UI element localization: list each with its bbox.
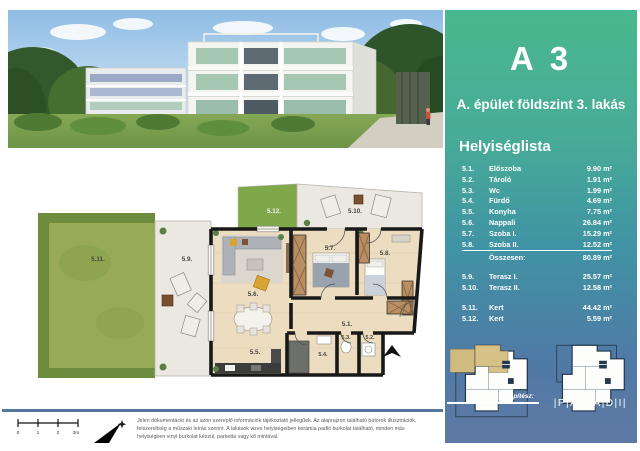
- terrace-5-9: [155, 221, 211, 376]
- room-name: Terasz I.: [489, 272, 583, 283]
- room-name: Wc: [489, 186, 587, 197]
- room-name: Szoba II.: [489, 240, 583, 251]
- total-area: 80.89 m²: [583, 252, 612, 263]
- total-row: Összesen: 80.89 m²: [462, 252, 612, 263]
- room-num: 5.8.: [462, 240, 489, 251]
- sidebar: A 3 A. épület földszint 3. lakás Helyisé…: [445, 10, 637, 443]
- garden-5-11: [38, 213, 155, 378]
- room-area: 12.58 m²: [583, 283, 612, 294]
- room-row: 5.1.Előszoba9.90 m²: [462, 164, 612, 175]
- living-room-furniture: [213, 230, 290, 291]
- label-5-5: 5.5.: [250, 349, 261, 356]
- room-num: 5.7.: [462, 229, 489, 240]
- room-name: Tároló: [489, 175, 587, 186]
- brochure-page: A 3 A. épület földszint 3. lakás Helyisé…: [0, 0, 640, 451]
- room-area: 12.52 m²: [583, 240, 612, 251]
- scale-tick-0: 0: [17, 430, 20, 436]
- room-row: 5.5.Konyha7.75 m²: [462, 207, 612, 218]
- room-area: 5.59 m²: [587, 314, 612, 325]
- scale-tick-1: 1: [37, 430, 40, 436]
- architect-divider: [447, 402, 539, 404]
- room-name: Konyha: [489, 207, 587, 218]
- room-row: 5.11.Kert44.42 m²: [462, 303, 612, 314]
- room-row: 5.4.Fürdő4.69 m²: [462, 196, 612, 207]
- room-name: Kert: [489, 314, 587, 325]
- room-list-heading: Helyiséglista: [459, 138, 637, 155]
- disclaimer-text: Jelen dokumentáció és az azon szereplő i…: [137, 418, 433, 442]
- apartment-code: A 3: [445, 40, 637, 78]
- room-area: 1.91 m²: [587, 175, 612, 186]
- left-building: [86, 68, 186, 116]
- room-row: 5.9.Terasz I.25.57 m²: [462, 272, 612, 283]
- garden-rooms: 5.11.Kert44.42 m²5.12.Kert5.59 m²: [462, 303, 612, 325]
- room-list-table: 5.1.Előszoba9.90 m²5.2.Tároló1.91 m²5.3.…: [462, 164, 612, 325]
- garden-5-12: [238, 184, 297, 229]
- plan-north-arrow-icon: [383, 345, 401, 357]
- room-num: 5.1.: [462, 164, 489, 175]
- jogger-figure: [426, 108, 431, 125]
- apartment-subtitle: A. épület földszint 3. lakás: [445, 97, 637, 112]
- total-label: Összesen:: [489, 252, 583, 263]
- architect-label: Építész:: [509, 393, 534, 400]
- room-num: 5.2.: [462, 175, 489, 186]
- room-area: 44.42 m²: [583, 303, 612, 314]
- room-row: 5.10.Terasz II.12.58 m²: [462, 283, 612, 294]
- room-num: 5.12.: [462, 314, 489, 325]
- room-num: 5.9.: [462, 272, 489, 283]
- room-num: 5.10.: [462, 283, 489, 294]
- room-name: Fürdő: [489, 196, 587, 207]
- main-building: [178, 34, 376, 126]
- room-row: 5.2.Tároló1.91 m²: [462, 175, 612, 186]
- room-name: Nappali: [489, 218, 583, 229]
- room-area: 1.99 m²: [587, 186, 612, 197]
- room-name: Kert: [489, 303, 583, 314]
- room-name: Terasz II.: [489, 283, 583, 294]
- label-5-11: 5.11.: [91, 256, 105, 263]
- label-5-9: 5.9.: [182, 256, 193, 263]
- label-5-1: 5.1.: [342, 321, 353, 328]
- label-5-4: 5.4.: [318, 352, 328, 358]
- room-row: 5.3.Wc1.99 m²: [462, 186, 612, 197]
- label-5-10: 5.10.: [348, 208, 362, 215]
- room-name: Szoba I.: [489, 229, 583, 240]
- room-row: 5.6.Nappali26.84 m²: [462, 218, 612, 229]
- scale-bar: 0 1 2 3m: [16, 418, 82, 436]
- room-area: 9.90 m²: [587, 164, 612, 175]
- room-num: 5.6.: [462, 218, 489, 229]
- room-name: Előszoba: [489, 164, 587, 175]
- room-area: 7.75 m²: [587, 207, 612, 218]
- label-5-7: 5.7.: [325, 245, 336, 252]
- label-5-3: 5.3.: [341, 335, 351, 341]
- architect-logo: |P|A|L|A|D|I|: [554, 398, 627, 409]
- floor-plan: 5.11. 5.9. 5.12. 5.10. 5.6. 5.5. 5.7. 5.…: [25, 183, 440, 400]
- room-area: 25.57 m²: [583, 272, 612, 283]
- north-arrow-icon: [92, 416, 130, 448]
- scale-tick-2: 2: [57, 430, 60, 436]
- label-5-6: 5.6.: [248, 291, 259, 298]
- label-5-12: 5.12.: [267, 208, 281, 215]
- room-area: 15.29 m²: [583, 229, 612, 240]
- room-area: 4.69 m²: [587, 196, 612, 207]
- terrace-5-10: [297, 184, 422, 229]
- room-num: 5.5.: [462, 207, 489, 218]
- label-5-2: 5.2.: [365, 335, 375, 341]
- room-num: 5.4.: [462, 196, 489, 207]
- room-row: 5.12.Kert5.59 m²: [462, 314, 612, 325]
- room-row: 5.7.Szoba I.15.29 m²: [462, 229, 612, 240]
- interior-rooms: 5.1.Előszoba9.90 m²5.2.Tároló1.91 m²5.3.…: [462, 164, 612, 251]
- room-area: 26.84 m²: [583, 218, 612, 229]
- architect-block: Építész: |P|A|L|A|D|I|: [445, 393, 637, 423]
- room-num: 5.3.: [462, 186, 489, 197]
- room-row: 5.8.Szoba II.12.52 m²: [462, 240, 612, 252]
- room-num: 5.11.: [462, 303, 489, 314]
- label-5-8: 5.8.: [380, 250, 391, 257]
- scale-tick-3: 3m: [73, 430, 80, 436]
- footer-divider-line: [2, 409, 443, 412]
- building-photo: [8, 10, 443, 148]
- terrace-rooms: 5.9.Terasz I.25.57 m²5.10.Terasz II.12.5…: [462, 272, 612, 294]
